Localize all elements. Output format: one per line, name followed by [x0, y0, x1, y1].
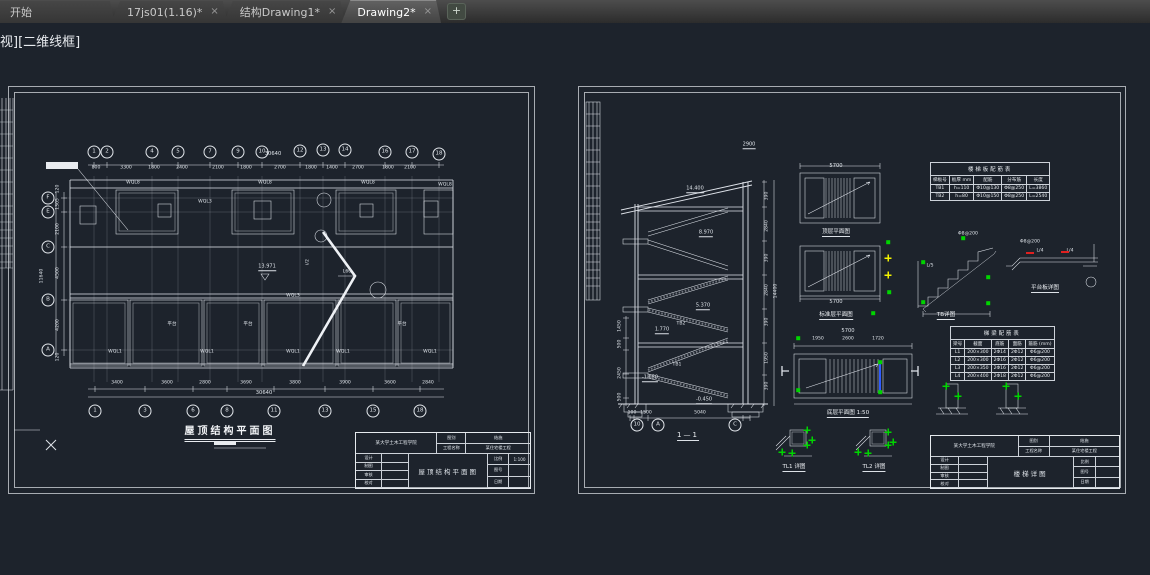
- tb-value: 结施: [466, 433, 530, 443]
- roof-plan-sheet[interactable]: 12457910121314161718 8003300180024002100…: [8, 86, 535, 494]
- stair-details-linework: [578, 86, 1126, 494]
- tb-label: 图别: [1019, 436, 1050, 446]
- tb-label: 日期: [488, 477, 509, 488]
- tb-label: 制图: [931, 465, 959, 473]
- org-name: 某大学土木工程学院: [931, 436, 1019, 456]
- tb-label: 校对: [931, 480, 959, 488]
- tb-value: [1096, 457, 1119, 467]
- tb-label: 工程名称: [437, 444, 466, 454]
- overall-dim-bottom: 30640: [256, 390, 273, 396]
- overall-dim-left: 11640: [40, 269, 45, 284]
- overall-dim-top: 30640: [265, 151, 282, 157]
- tb-value: [1096, 478, 1119, 488]
- thick-leader-polyline: [303, 232, 355, 366]
- drawing-tab[interactable]: Drawing2* ×: [341, 0, 441, 23]
- tb-label: 设计: [356, 454, 382, 463]
- tb-value: [509, 465, 530, 476]
- tab-close-icon[interactable]: ×: [210, 7, 218, 17]
- tab-close-icon[interactable]: ×: [328, 7, 336, 17]
- tab-label: 结构Drawing1*: [240, 4, 320, 20]
- tab-close-icon[interactable]: ×: [424, 7, 432, 17]
- drawing-tab-bar: 开始 17js01(1.16)* × 结构Drawing1* × Drawing…: [0, 0, 1150, 23]
- tb-label: 审核: [356, 471, 382, 480]
- tb-label: 制图: [356, 463, 382, 472]
- tb-value: 某住宅楼工程: [1050, 447, 1119, 457]
- tb-drawing-name: 楼梯详图: [988, 457, 1074, 488]
- tb-label: 校对: [356, 480, 382, 489]
- tb-value: 1:100: [509, 454, 530, 465]
- tb-label: 图号: [1074, 467, 1097, 477]
- new-tab-button[interactable]: +: [447, 3, 466, 20]
- drawing-tab[interactable]: 开始: [0, 1, 115, 23]
- tb-label: 日期: [1074, 478, 1097, 488]
- drawing-title: 屋顶结构平面图: [185, 422, 276, 442]
- tb-drawing-name: 屋顶结构平面图: [409, 454, 488, 488]
- cad-application: 开始 17js01(1.16)* × 结构Drawing1* × Drawing…: [0, 0, 1150, 575]
- tb-label: 设计: [931, 457, 959, 465]
- tb-label: 工程名称: [1019, 447, 1050, 457]
- tb-value: 结施: [1050, 436, 1119, 446]
- drawing-tab[interactable]: 17js01(1.16)* ×: [111, 1, 228, 23]
- title-block: 某大学土木工程学院 图别结施 工程名称某住宅楼工程 设计 制图 审核 校对 屋顶…: [355, 432, 531, 489]
- tb-label: 比例: [488, 454, 509, 465]
- tb-label: 图别: [437, 433, 466, 443]
- stair-slab-schedule: 楼梯板配筋表梯板号板厚 mm配筋分布筋长度TB1h=110Φ10@130Φ8@2…: [930, 162, 1096, 201]
- tab-label: Drawing2*: [357, 6, 415, 19]
- stair-details-sheet[interactable]: 290014.4008.9705.3701.770-1.050-0.450 TB…: [578, 86, 1126, 494]
- drawing-tab[interactable]: 结构Drawing1* ×: [224, 1, 346, 23]
- section-title: 1—1: [677, 431, 699, 441]
- tab-label: 开始: [10, 4, 32, 20]
- title-block: 某大学土木工程学院 图别结施 工程名称某住宅楼工程 设计 制图 审核 校对 楼梯…: [930, 435, 1120, 489]
- drawing-tabs: 开始 17js01(1.16)* × 结构Drawing1* × Drawing…: [0, 0, 437, 23]
- tb-label: 图号: [488, 465, 509, 476]
- solid-note-bar: [46, 162, 78, 169]
- tb-value: [509, 477, 530, 488]
- tab-label: 17js01(1.16)*: [127, 6, 202, 19]
- stair-beam-schedule: 梯梁配筋表梁号截面底筋面筋箍筋 (mm)L1200×3002Φ142Φ12Φ6@…: [950, 326, 1090, 381]
- tb-label: 比例: [1074, 457, 1097, 467]
- tb-value: 某住宅楼工程: [466, 444, 530, 454]
- tb-label: 审核: [931, 473, 959, 481]
- org-name: 某大学土木工程学院: [356, 433, 437, 453]
- tb-value: [1096, 467, 1119, 477]
